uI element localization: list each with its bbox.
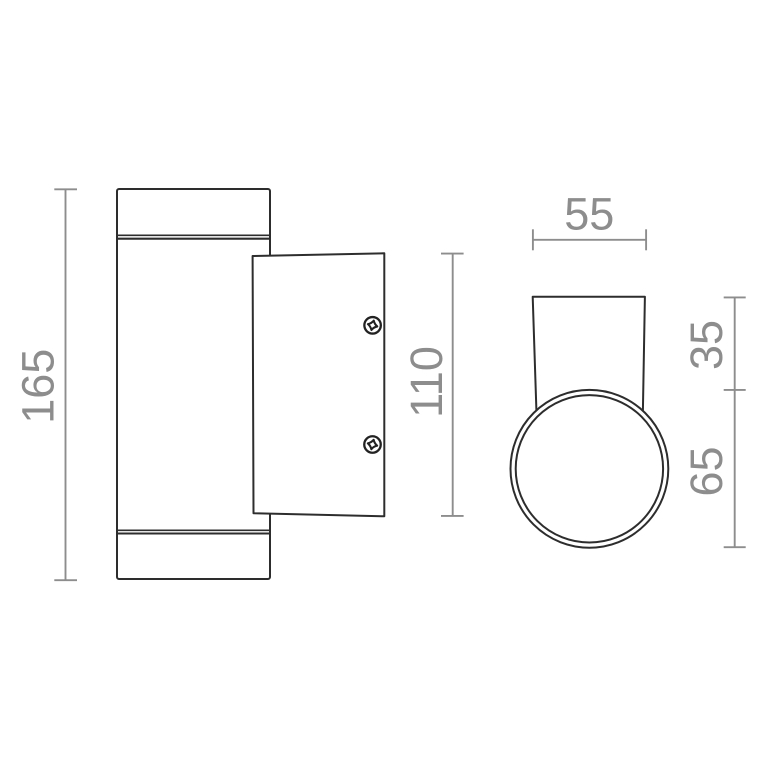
svg-text:110: 110 [401,346,452,418]
svg-text:165: 165 [13,349,64,424]
svg-text:35: 35 [681,320,732,370]
svg-text:65: 65 [681,446,732,496]
svg-text:55: 55 [564,189,614,240]
